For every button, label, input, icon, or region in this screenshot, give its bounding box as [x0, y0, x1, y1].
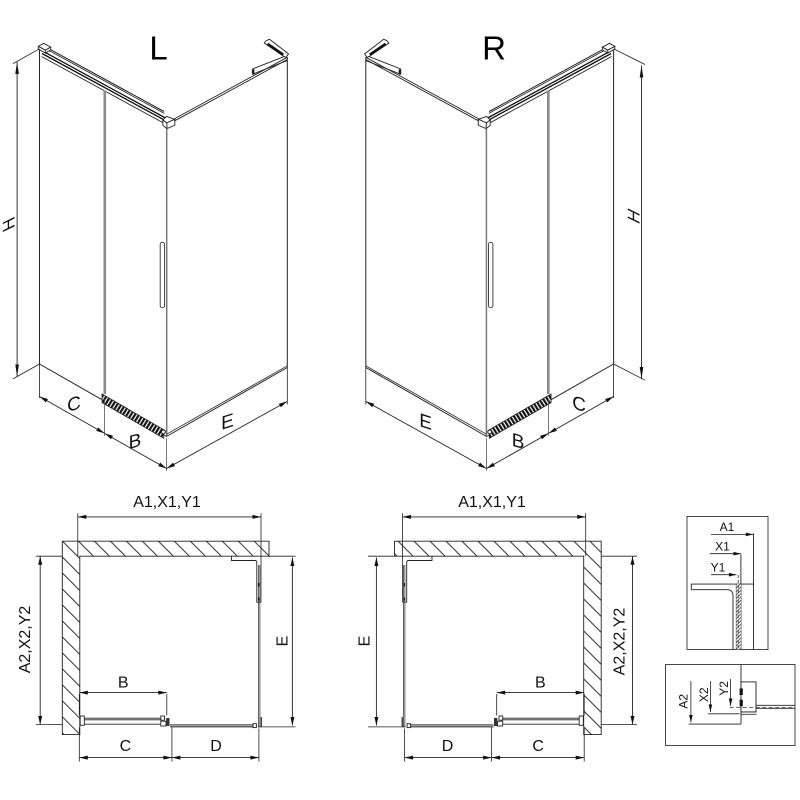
svg-text:B: B [129, 429, 142, 454]
svg-text:C: C [532, 738, 544, 755]
svg-text:A2: A2 [677, 694, 691, 709]
svg-text:A1: A1 [720, 520, 735, 534]
svg-text:E: E [419, 409, 432, 435]
svg-text:L: L [149, 30, 167, 67]
svg-text:R: R [482, 30, 506, 67]
svg-text:X2: X2 [697, 687, 711, 702]
svg-text:A2,X2,Y2: A2,X2,Y2 [612, 608, 629, 676]
svg-text:B: B [118, 674, 129, 691]
svg-text:E: E [221, 409, 234, 435]
svg-text:A2,X2,Y2: A2,X2,Y2 [17, 606, 34, 674]
svg-text:E: E [275, 636, 292, 647]
svg-text:Y1: Y1 [711, 561, 726, 575]
svg-text:Y2: Y2 [717, 681, 731, 696]
svg-text:X1: X1 [715, 540, 730, 554]
svg-text:C: C [67, 392, 81, 417]
svg-text:E: E [357, 636, 374, 647]
svg-text:A1,X1,Y1: A1,X1,Y1 [458, 494, 526, 511]
svg-text:B: B [535, 674, 546, 691]
svg-text:B: B [512, 429, 525, 454]
svg-text:C: C [572, 392, 586, 417]
svg-text:C: C [120, 738, 132, 755]
svg-text:D: D [442, 738, 454, 755]
svg-text:A1,X1,Y1: A1,X1,Y1 [133, 494, 201, 511]
svg-text:D: D [210, 738, 222, 755]
